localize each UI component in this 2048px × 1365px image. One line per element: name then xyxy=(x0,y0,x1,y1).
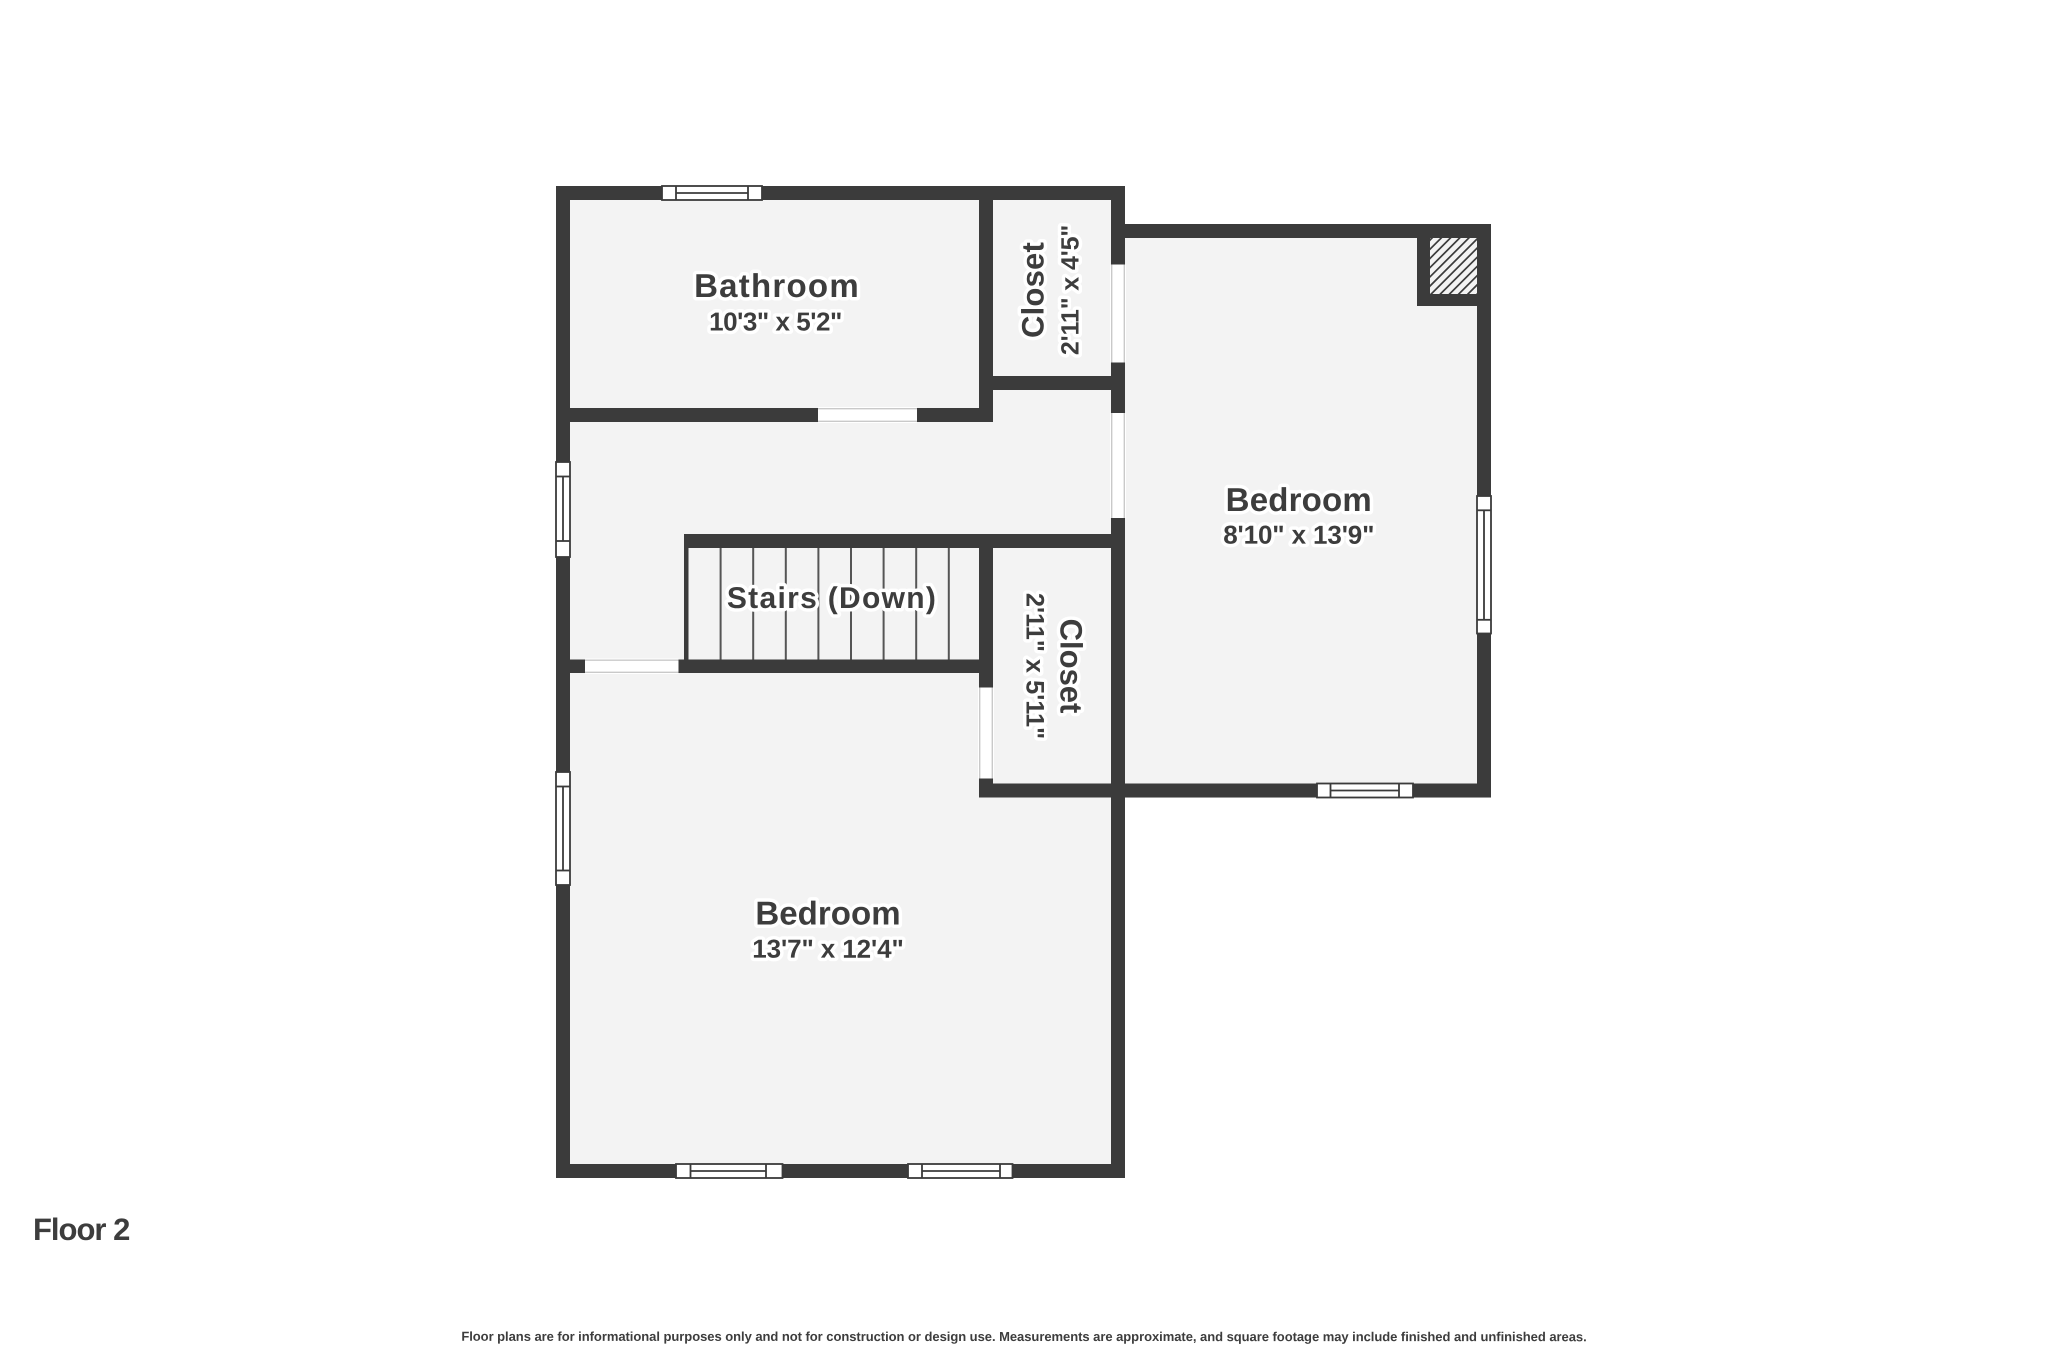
svg-text:Bedroom: Bedroom xyxy=(755,894,900,931)
svg-text:Floor 2: Floor 2 xyxy=(33,1212,129,1247)
svg-text:Closet: Closet xyxy=(1053,619,1088,714)
svg-text:2'11" x 5'11": 2'11" x 5'11" xyxy=(1020,593,1048,739)
svg-text:Bathroom: Bathroom xyxy=(694,267,860,304)
svg-text:13'7" x 12'4": 13'7" x 12'4" xyxy=(752,934,903,964)
svg-text:8'10" x 13'9": 8'10" x 13'9" xyxy=(1223,520,1374,550)
svg-text:Closet: Closet xyxy=(1015,242,1050,338)
svg-text:2'11" x 4'5": 2'11" x 4'5" xyxy=(1057,225,1085,355)
svg-text:10'3" x 5'2": 10'3" x 5'2" xyxy=(709,306,842,336)
svg-text:Floor plans are for informatio: Floor plans are for informational purpos… xyxy=(461,1329,1586,1344)
svg-text:Stairs (Down): Stairs (Down) xyxy=(727,582,937,615)
svg-text:Bedroom: Bedroom xyxy=(1226,481,1372,518)
